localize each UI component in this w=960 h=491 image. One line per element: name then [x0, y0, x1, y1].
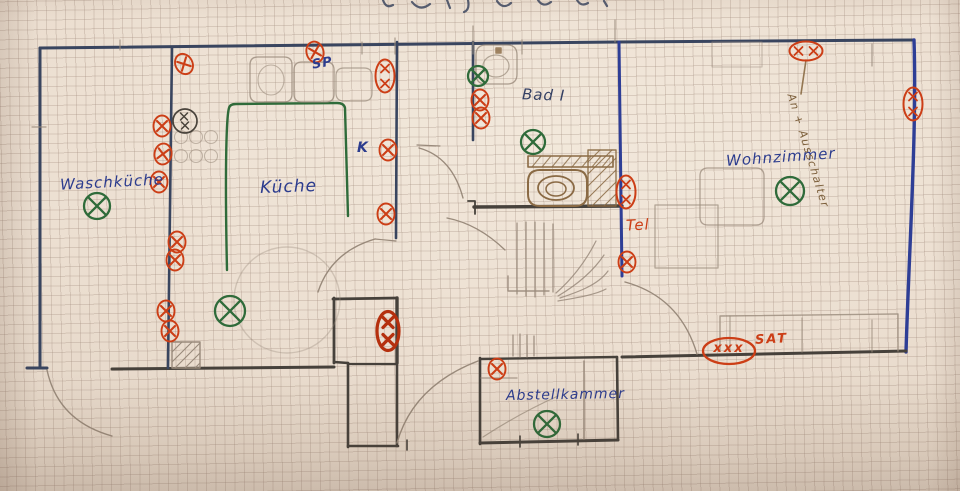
wohnzimmer-bottom-wall [622, 351, 906, 357]
ceiling-light-symbol [521, 130, 545, 154]
stair-treads-lower [513, 334, 534, 357]
ceiling-light-symbol [468, 66, 488, 86]
niche-closet-link [334, 362, 348, 363]
power-outlet-symbol [172, 51, 197, 78]
double-outlet-symbol-pencil [173, 109, 197, 133]
power-outlet-symbol [162, 321, 179, 342]
double-power-outlet-symbol [376, 60, 395, 93]
kitchen-bottom-wall [112, 367, 334, 369]
bath-hatch-lines [588, 150, 616, 206]
hatched-duct [172, 342, 200, 368]
livingroom-door-arc [625, 282, 697, 354]
bath-door-arc [419, 148, 463, 198]
ceiling-light-symbol [534, 411, 560, 437]
kitchen-table [234, 247, 340, 353]
livingroom-top-rect [712, 42, 762, 67]
bath-basin-tap [496, 48, 501, 53]
double-power-outlet-symbol [617, 176, 636, 209]
ceiling-light-symbol [84, 193, 110, 219]
kitchen-appliance-1-oval [258, 65, 284, 95]
hall-door-arc [447, 218, 505, 250]
entrance-door-arc [397, 361, 478, 443]
kitchen-door-leaf [375, 239, 396, 241]
switch-note-connector [801, 60, 806, 94]
livingroom-armchair [700, 168, 764, 225]
floorplan-photo: Waschküche Küche Bad I Wohnzimmer Abstel… [0, 0, 960, 491]
kitchen-right-wall [396, 42, 397, 238]
stair-corner [508, 276, 549, 291]
stair-treads-upper [517, 222, 553, 297]
toilet-bowl-core [546, 182, 566, 196]
annotation-sat: SAT [755, 331, 789, 348]
bath-door-leaf [417, 145, 440, 146]
niche-top [333, 298, 397, 299]
abstellkammer-bottom-wall [480, 440, 618, 443]
outer-top-wall [40, 40, 914, 48]
entry-door-arc-bottom-left [47, 370, 112, 436]
livingroom-cabinet [655, 205, 718, 268]
floorplan-drawing [0, 0, 960, 491]
power-outlet-symbol [380, 140, 397, 161]
hatched-duct-lines [172, 342, 200, 368]
toilet-shelf-hatch [532, 156, 611, 167]
room-label-bad: Bad I [522, 85, 566, 104]
power-outlet-symbol [378, 204, 395, 225]
kitchen-appliance-3 [336, 68, 372, 101]
power-outlet-symbol [158, 301, 175, 322]
annotation-k: K [357, 140, 369, 156]
stair-winders [556, 241, 608, 301]
power-outlet-symbol [489, 359, 506, 380]
cutoff-title-strokes [383, 0, 607, 12]
ceiling-light-symbol [215, 296, 245, 326]
power-outlet-symbol [154, 116, 171, 137]
bad-wohnzimmer-wall [619, 42, 622, 276]
annotation-xxx: xxx [705, 341, 753, 356]
room-label-kueche: Küche [260, 176, 318, 198]
stove-burners [175, 131, 218, 163]
annotation-tel: Tel [626, 215, 651, 234]
room-label-abstellkammer: Abstellkammer [506, 386, 625, 404]
ceiling-light-symbol [776, 177, 804, 205]
double-power-outlet-symbol [790, 42, 823, 61]
